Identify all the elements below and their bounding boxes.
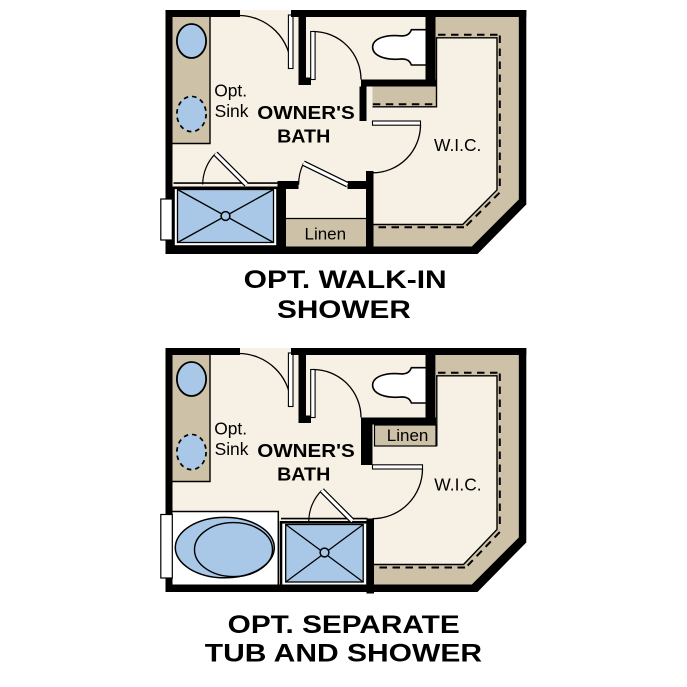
svg-text:OWNER'S: OWNER'S (257, 440, 355, 461)
svg-text:OPT. WALK-IN: OPT. WALK-IN (244, 266, 447, 294)
svg-text:Linen: Linen (304, 225, 346, 244)
svg-text:BATH: BATH (277, 464, 330, 485)
svg-text:Linen: Linen (387, 426, 429, 445)
svg-text:Opt.: Opt. (214, 81, 247, 101)
svg-text:OPT. SEPARATE: OPT. SEPARATE (228, 611, 460, 639)
svg-text:W.I.C.: W.I.C. (434, 475, 481, 495)
svg-text:Sink: Sink (215, 439, 249, 459)
svg-text:TUB AND SHOWER: TUB AND SHOWER (205, 640, 482, 668)
svg-text:SHOWER: SHOWER (277, 296, 411, 324)
svg-text:OWNER'S: OWNER'S (257, 102, 355, 123)
svg-text:W.I.C.: W.I.C. (434, 135, 481, 155)
svg-text:Sink: Sink (215, 101, 249, 121)
svg-text:BATH: BATH (277, 126, 330, 147)
svg-text:Opt.: Opt. (214, 419, 247, 439)
